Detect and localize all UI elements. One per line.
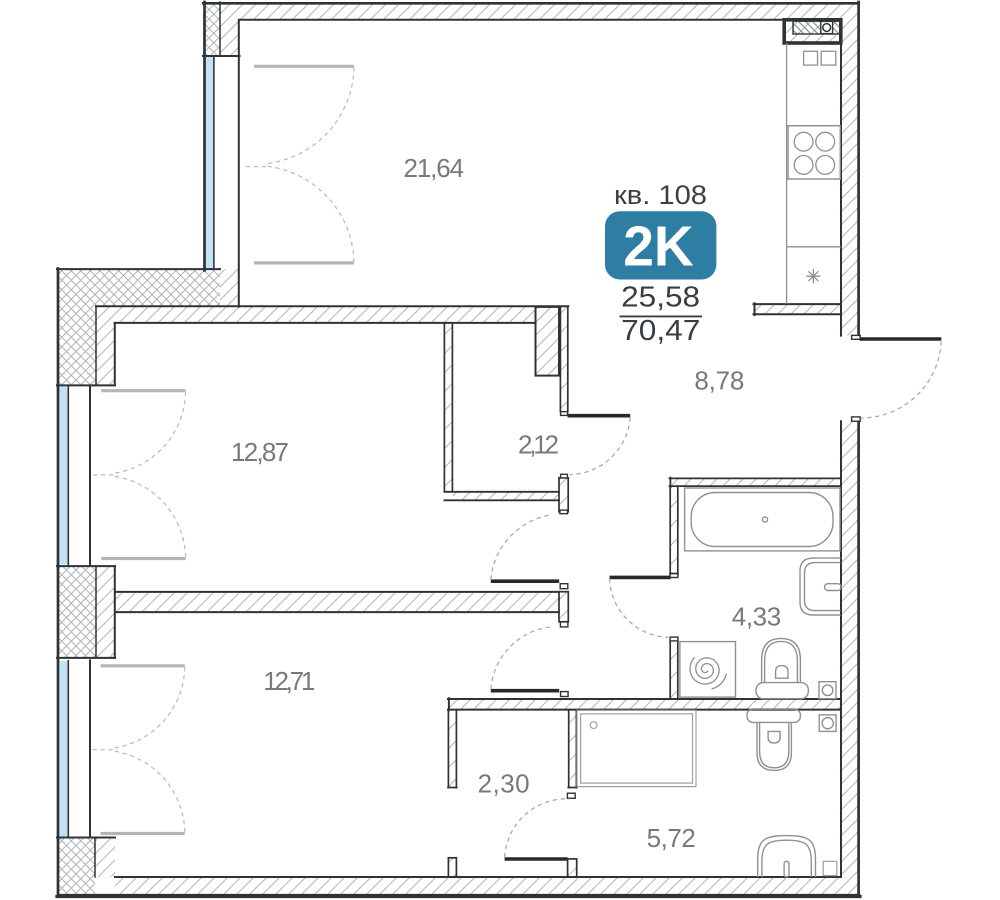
svg-text:4,33: 4,33 [732,602,781,632]
svg-text:21,64: 21,64 [404,153,465,183]
svg-text:2,30: 2,30 [478,769,530,799]
svg-text:2,12: 2,12 [518,429,559,459]
svg-text:70,47: 70,47 [621,315,700,347]
svg-text:кв. 108: кв. 108 [614,180,707,210]
svg-text:12,87: 12,87 [231,437,289,467]
svg-text:8,78: 8,78 [694,366,744,396]
svg-text:5,72: 5,72 [647,823,696,853]
svg-text:25,58: 25,58 [621,282,700,314]
svg-text:2K: 2K [623,215,694,279]
svg-text:12,71: 12,71 [263,666,315,696]
